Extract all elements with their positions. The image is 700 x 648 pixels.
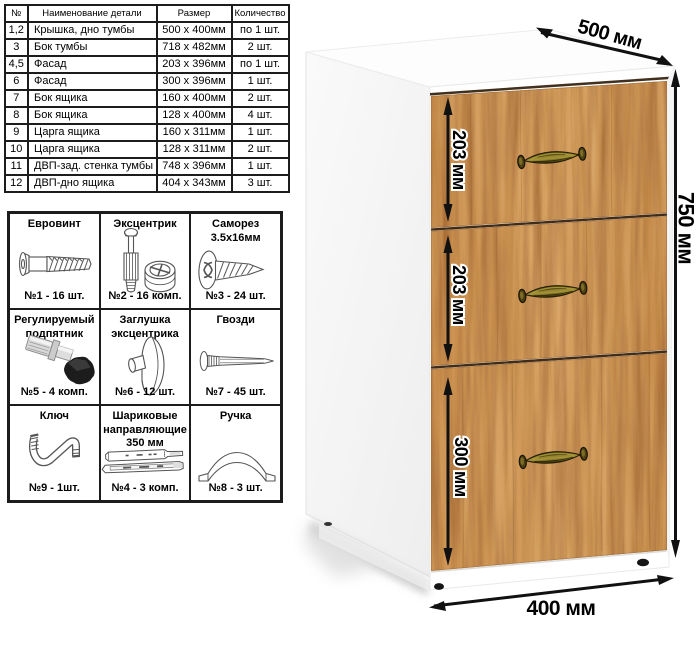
svg-text:750 мм: 750 мм — [674, 192, 699, 264]
svg-text:300 мм: 300 мм — [451, 437, 471, 497]
svg-text:203 мм: 203 мм — [449, 265, 469, 325]
svg-text:400 мм: 400 мм — [527, 597, 596, 620]
svg-text:203 мм: 203 мм — [449, 130, 469, 190]
